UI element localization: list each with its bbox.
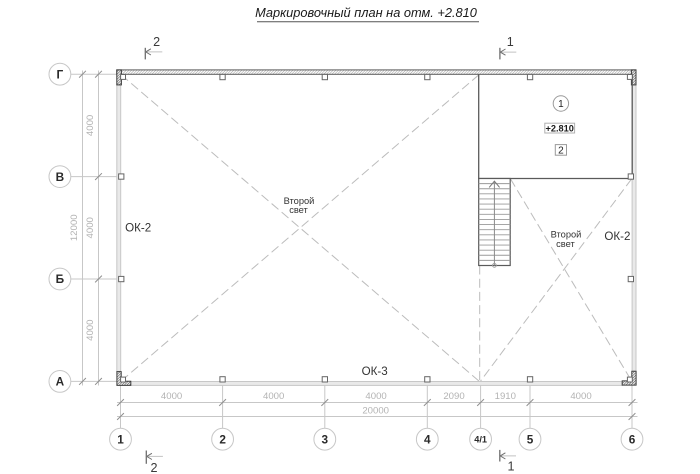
svg-text:1: 1: [117, 432, 124, 446]
svg-text:4000: 4000: [263, 391, 284, 402]
svg-text:1910: 1910: [495, 391, 516, 402]
svg-text:Б: Б: [56, 272, 65, 286]
svg-text:3: 3: [322, 432, 329, 446]
svg-text:2: 2: [150, 461, 157, 474]
svg-text:2: 2: [558, 145, 564, 156]
svg-text:1: 1: [507, 460, 514, 474]
svg-text:5: 5: [527, 432, 534, 446]
svg-text:4000: 4000: [85, 320, 96, 341]
svg-text:Маркировочный план на отм. +2.: Маркировочный план на отм. +2.810: [255, 5, 478, 20]
svg-text:20000: 20000: [362, 405, 389, 416]
svg-text:4000: 4000: [161, 391, 182, 402]
svg-text:1: 1: [558, 99, 564, 110]
svg-text:2: 2: [219, 432, 226, 446]
svg-text:Второй: Второй: [551, 230, 582, 240]
svg-text:свет: свет: [289, 205, 308, 215]
svg-text:12000: 12000: [69, 214, 80, 241]
svg-text:ОК-3: ОК-3: [362, 365, 388, 378]
svg-text:ОК-2: ОК-2: [125, 222, 151, 235]
svg-text:4000: 4000: [365, 391, 386, 402]
svg-text:6: 6: [629, 432, 636, 446]
svg-text:1: 1: [507, 35, 514, 49]
svg-text:свет: свет: [556, 239, 575, 249]
svg-text:ОК-2: ОК-2: [604, 230, 630, 243]
svg-text:4/1: 4/1: [474, 435, 487, 445]
svg-text:2090: 2090: [443, 391, 464, 402]
svg-text:Г: Г: [57, 67, 64, 81]
svg-text:4: 4: [424, 432, 431, 446]
svg-text:В: В: [56, 170, 65, 184]
svg-text:+2.810: +2.810: [546, 123, 574, 133]
svg-text:2: 2: [153, 35, 160, 49]
svg-text:4000: 4000: [570, 391, 591, 402]
svg-text:А: А: [56, 375, 65, 389]
svg-text:4000: 4000: [85, 217, 96, 238]
svg-text:4000: 4000: [85, 115, 96, 136]
